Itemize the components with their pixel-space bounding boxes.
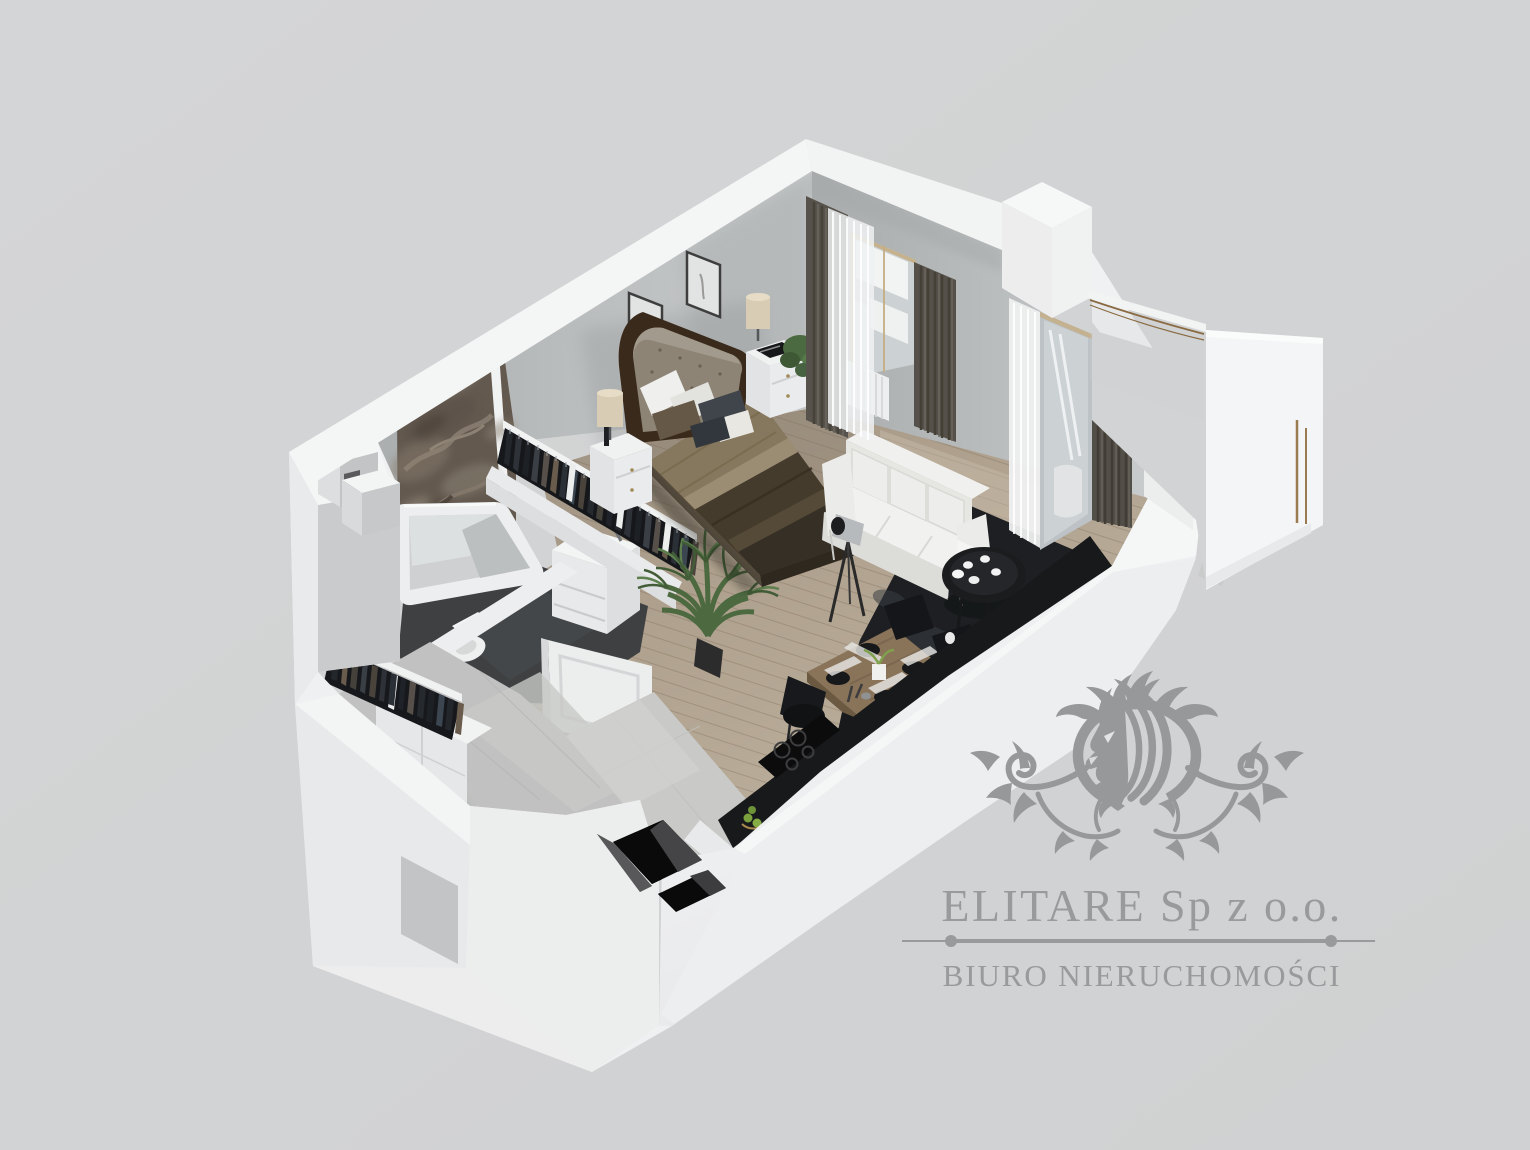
svg-text:ELITARE Sp z o.o.: ELITARE Sp z o.o. bbox=[941, 880, 1342, 931]
svg-text:BIURO NIERUCHOMOŚCI: BIURO NIERUCHOMOŚCI bbox=[943, 958, 1342, 993]
